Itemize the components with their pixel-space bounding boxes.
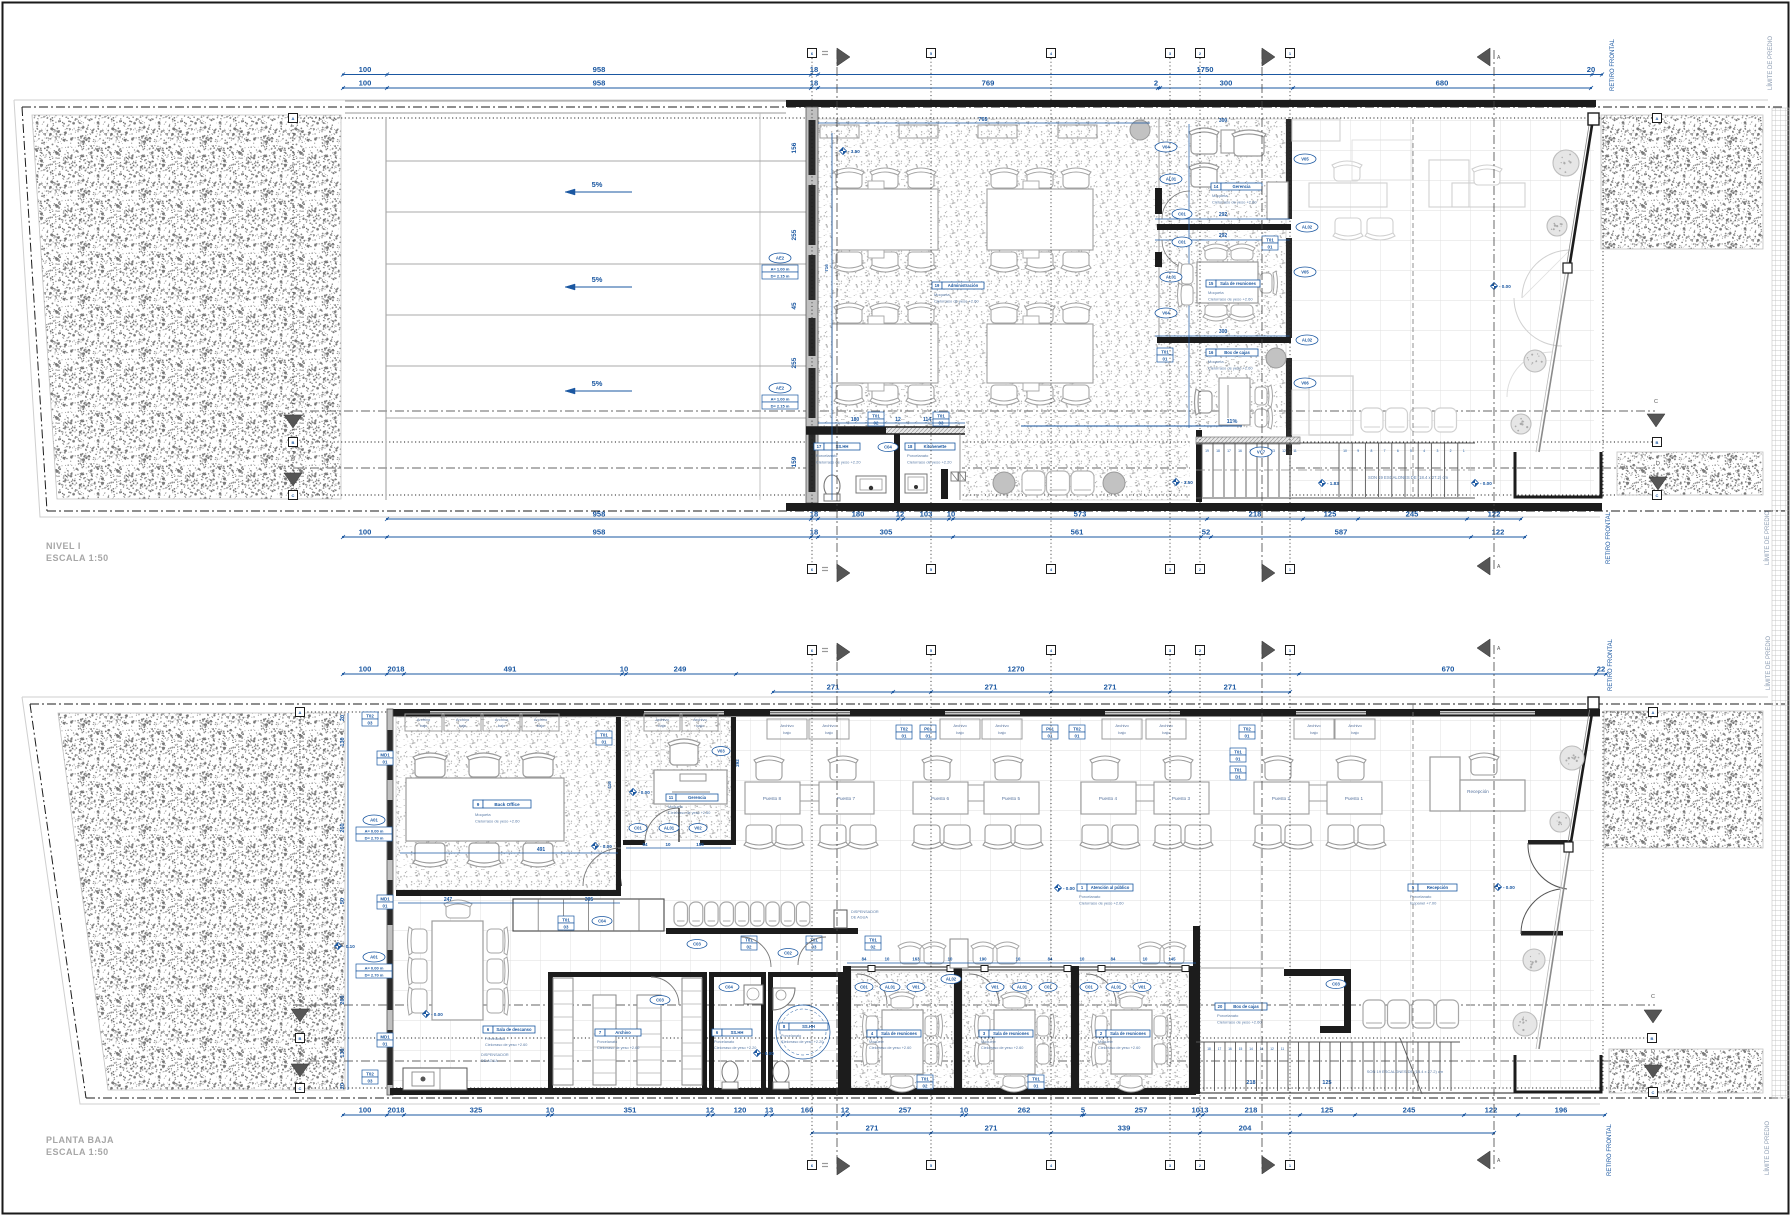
svg-text:C01: C01 (860, 985, 868, 990)
svg-text:D: D (291, 457, 295, 463)
svg-text:271: 271 (827, 683, 840, 692)
svg-text:18: 18 (810, 528, 818, 537)
svg-text:T02: T02 (1073, 727, 1081, 732)
svg-text:D: D (1651, 1049, 1655, 1055)
svg-text:A01: A01 (370, 818, 378, 823)
svg-text:3: 3 (1436, 449, 1438, 453)
svg-text:84: 84 (1111, 957, 1116, 962)
svg-text:V02: V02 (694, 826, 702, 831)
svg-text:Moqueta: Moqueta (1212, 193, 1228, 198)
svg-text:bajo: bajo (825, 730, 833, 735)
svg-text:DE AGUA: DE AGUA (851, 916, 868, 920)
svg-text:587: 587 (1335, 528, 1348, 537)
svg-text:bajo: bajo (1351, 730, 1359, 735)
svg-text:DISPENSADOR: DISPENSADOR (851, 910, 879, 914)
svg-text:22: 22 (1597, 665, 1605, 674)
svg-text:155: 155 (696, 842, 704, 847)
svg-text:T02: T02 (900, 727, 908, 732)
svg-text:18: 18 (908, 444, 913, 449)
svg-text:ESCALA 1:50: ESCALA 1:50 (46, 1147, 109, 1157)
svg-text:LÍMITE DE PREDIO: LÍMITE DE PREDIO (1767, 36, 1774, 90)
svg-text:204: 204 (1239, 1124, 1252, 1133)
svg-text:01: 01 (383, 760, 388, 765)
svg-text:18: 18 (810, 510, 818, 519)
svg-text:Archivo: Archivo (822, 723, 836, 728)
svg-text:- 0.00: - 0.00 (600, 844, 612, 849)
svg-text:130: 130 (340, 737, 346, 746)
svg-text:C03: C03 (693, 942, 701, 947)
svg-text:C04: C04 (725, 985, 733, 990)
svg-text:Moqueta: Moqueta (1208, 359, 1224, 364)
svg-text:680: 680 (1436, 79, 1449, 88)
svg-text:180: 180 (851, 417, 860, 423)
svg-text:01: 01 (1245, 734, 1250, 739)
svg-text:AL02: AL02 (946, 977, 957, 982)
svg-text:MD1: MD1 (380, 1035, 390, 1040)
svg-text:A= 0.00 m: A= 0.00 m (365, 829, 384, 834)
svg-text:Cielorraso de yeso +2.60: Cielorraso de yeso +2.60 (1079, 901, 1124, 906)
svg-text:C: C (1656, 493, 1659, 498)
svg-text:Moquete: Moquete (869, 1040, 884, 1044)
svg-text:C03: C03 (1332, 982, 1340, 987)
svg-text:257: 257 (1135, 1106, 1148, 1115)
svg-text:A= 0.00 m: A= 0.00 m (365, 966, 384, 971)
svg-text:T01: T01 (872, 414, 880, 419)
svg-text:Archivo: Archivo (495, 717, 509, 722)
svg-text:bajo: bajo (998, 730, 1006, 735)
svg-text:Porcelanato: Porcelanato (485, 1037, 505, 1041)
svg-text:DISPENSADOR: DISPENSADOR (481, 1053, 509, 1057)
svg-text:Archivo: Archivo (615, 1030, 631, 1035)
svg-text:A= 1.00 m: A= 1.00 m (771, 397, 790, 402)
svg-text:958: 958 (593, 510, 606, 519)
svg-text:AL02: AL02 (1302, 338, 1313, 343)
svg-text:218: 218 (1249, 510, 1262, 519)
svg-text:C03: C03 (656, 998, 664, 1003)
svg-text:V01: V01 (912, 985, 920, 990)
svg-text:C01: C01 (1178, 212, 1186, 217)
svg-text:Cielorraso de yeso +2.60: Cielorraso de yeso +2.60 (597, 1046, 639, 1050)
svg-text:C: C (291, 400, 295, 406)
svg-text:Archivo: Archivo (780, 723, 794, 728)
svg-text:271: 271 (1224, 683, 1237, 692)
svg-text:T01: T01 (921, 1077, 929, 1082)
svg-text:Cielorraso de yeso +2.60: Cielorraso de yeso +2.60 (934, 299, 979, 304)
svg-text:Sala de reuniones: Sala de reuniones (1110, 1031, 1147, 1036)
svg-text:T02: T02 (366, 1072, 374, 1077)
svg-text:247: 247 (444, 897, 453, 903)
svg-text:T01: T01 (1032, 1077, 1040, 1082)
svg-text:T01: T01 (562, 918, 570, 923)
svg-text:Cielorraso de yeso +2.60: Cielorraso de yeso +2.60 (1217, 1020, 1262, 1025)
svg-text:6: 6 (1397, 449, 1399, 453)
svg-text:C04: C04 (598, 919, 606, 924)
svg-text:AL01: AL01 (1166, 177, 1177, 182)
svg-text:- 1.83: - 1.83 (1327, 481, 1339, 486)
svg-text:14: 14 (1249, 1047, 1253, 1051)
svg-text:C01: C01 (1178, 240, 1186, 245)
svg-text:01: 01 (1268, 245, 1273, 250)
svg-text:15: 15 (1239, 1047, 1243, 1051)
svg-text:Kitchenette: Kitchenette (924, 444, 947, 449)
svg-text:14: 14 (1214, 184, 1219, 189)
svg-text:T01: T01 (1234, 768, 1242, 773)
svg-text:V04: V04 (1162, 145, 1170, 150)
svg-text:ESCALA 1:50: ESCALA 1:50 (46, 553, 109, 563)
svg-text:AL02: AL02 (1302, 225, 1313, 230)
svg-text:01: 01 (383, 1042, 388, 1047)
svg-text:20: 20 (1587, 65, 1595, 74)
svg-text:159: 159 (791, 456, 798, 467)
svg-text:C04: C04 (884, 445, 892, 450)
svg-text:V04: V04 (1162, 311, 1170, 316)
svg-text:01: 01 (1163, 357, 1168, 362)
svg-text:5%: 5% (592, 180, 603, 189)
svg-text:C01: C01 (1085, 985, 1093, 990)
svg-text:10: 10 (885, 957, 890, 962)
svg-text:156: 156 (791, 142, 798, 153)
svg-text:AE2: AE2 (776, 386, 785, 391)
svg-text:03: 03 (368, 721, 373, 726)
svg-text:A= 1.00 m: A= 1.00 m (771, 267, 790, 272)
svg-text:561: 561 (1071, 528, 1084, 537)
svg-text:bajo: bajo (498, 723, 506, 728)
svg-text:Puesto 3: Puesto 3 (1172, 796, 1191, 801)
svg-text:- 3.50: - 3.50 (848, 149, 860, 154)
svg-text:bajo: bajo (537, 723, 545, 728)
svg-text:Moqueta: Moqueta (475, 812, 491, 817)
svg-text:Archivo: Archivo (417, 717, 431, 722)
svg-text:03: 03 (368, 1079, 373, 1084)
svg-text:10: 10 (948, 957, 953, 962)
svg-text:B: B (292, 440, 295, 445)
svg-text:D1: D1 (1235, 775, 1241, 780)
svg-text:17: 17 (1218, 1047, 1222, 1051)
svg-text:Porcelanato: Porcelanato (1079, 894, 1101, 899)
svg-text:DE AGUA: DE AGUA (481, 1059, 498, 1063)
svg-text:Moquete: Moquete (1098, 1040, 1113, 1044)
svg-text:bajo: bajo (696, 723, 704, 728)
svg-text:01: 01 (926, 734, 931, 739)
svg-text:MD1: MD1 (380, 897, 390, 902)
svg-text:271: 271 (866, 1124, 879, 1133)
svg-text:716: 716 (824, 264, 829, 272)
svg-text:V03: V03 (717, 749, 725, 754)
svg-text:Porcelanato: Porcelanato (907, 453, 929, 458)
svg-text:Sala de reuniones: Sala de reuniones (881, 1031, 918, 1036)
svg-text:Archivo: Archivo (995, 723, 1009, 728)
svg-text:395: 395 (585, 897, 594, 903)
svg-text:Cielorraso de yeso +2.20: Cielorraso de yeso +2.20 (714, 1046, 756, 1050)
svg-text:196: 196 (1555, 1106, 1568, 1115)
svg-text:AL01: AL01 (664, 826, 675, 831)
svg-text:SON 19 ESCALONES DE (18.4 x 27: SON 19 ESCALONES DE (18.4 x 27.2) cm (1368, 475, 1449, 480)
svg-text:RETIRO FRONTAL: RETIRO FRONTAL (1606, 511, 1612, 564)
svg-text:Box de cajas: Box de cajas (1233, 1004, 1259, 1009)
svg-text:260: 260 (340, 995, 346, 1004)
svg-text:01: 01 (1048, 734, 1053, 739)
svg-text:292: 292 (735, 759, 740, 767)
svg-text:12: 12 (841, 1106, 849, 1115)
svg-text:351: 351 (624, 1106, 637, 1115)
svg-text:18: 18 (1216, 449, 1220, 453)
svg-text:Cielorraso de yeso +2.60: Cielorraso de yeso +2.60 (668, 811, 710, 815)
svg-text:AL01: AL01 (885, 985, 896, 990)
svg-text:C: C (292, 493, 295, 498)
svg-text:130: 130 (340, 1048, 346, 1057)
svg-text:Cielorraso de yeso +2.20: Cielorraso de yeso +2.20 (816, 460, 861, 465)
svg-text:Cielorraso de yeso +2.60: Cielorraso de yeso +2.60 (981, 1046, 1023, 1050)
svg-text:Moqueta: Moqueta (668, 805, 684, 809)
svg-text:8: 8 (1370, 449, 1372, 453)
svg-text:10: 10 (620, 665, 628, 674)
svg-text:AL01: AL01 (1111, 985, 1122, 990)
svg-text:769: 769 (982, 79, 995, 88)
svg-text:12: 12 (1270, 1047, 1274, 1051)
svg-text:Archivo: Archivo (693, 717, 707, 722)
svg-text:9: 9 (477, 802, 480, 807)
svg-text:- 0.00: - 0.00 (638, 790, 650, 795)
svg-text:Administración: Administración (948, 283, 979, 288)
svg-text:- 0.00: - 0.00 (1499, 284, 1511, 289)
svg-text:245: 245 (1406, 510, 1419, 519)
svg-text:01: 01 (1075, 734, 1080, 739)
svg-text:271: 271 (985, 1124, 998, 1133)
svg-text:416: 416 (607, 781, 612, 789)
svg-text:01: 01 (1034, 1084, 1039, 1089)
svg-text:670: 670 (1442, 665, 1455, 674)
svg-text:Sala de reuniones: Sala de reuniones (993, 1031, 1030, 1036)
svg-text:10: 10 (546, 1106, 554, 1115)
svg-text:RETIRO FRONTAL: RETIRO FRONTAL (1608, 638, 1614, 691)
svg-text:NIVEL I: NIVEL I (46, 541, 81, 551)
svg-text:958: 958 (593, 528, 606, 537)
svg-text:84: 84 (1048, 957, 1053, 962)
svg-text:C02: C02 (784, 951, 792, 956)
svg-text:Puesto 6: Puesto 6 (931, 796, 950, 801)
svg-text:271: 271 (1104, 683, 1117, 692)
svg-text:bajo: bajo (658, 723, 666, 728)
svg-text:01: 01 (383, 904, 388, 909)
svg-text:245: 245 (1403, 1106, 1416, 1115)
svg-text:12: 12 (1282, 449, 1286, 453)
svg-text:573: 573 (1074, 510, 1087, 519)
svg-text:11%: 11% (1227, 419, 1238, 425)
svg-text:A: A (1656, 116, 1659, 121)
svg-text:T01: T01 (937, 414, 945, 419)
svg-text:Porcelanato: Porcelanato (781, 1034, 801, 1038)
svg-text:D: D (298, 1048, 302, 1054)
svg-text:218: 218 (1245, 1106, 1258, 1115)
svg-text:Atención al público: Atención al público (1091, 885, 1130, 890)
svg-text:5%: 5% (592, 379, 603, 388)
svg-text:Moqueta: Moqueta (1208, 290, 1224, 295)
svg-text:VC7: VC7 (1257, 450, 1266, 455)
svg-text:262: 262 (1018, 1106, 1031, 1115)
svg-text:769: 769 (978, 117, 987, 123)
svg-text:11: 11 (1281, 1047, 1285, 1051)
svg-text:- 0.00: - 0.00 (431, 1012, 443, 1017)
svg-text:02: 02 (871, 945, 876, 950)
svg-text:255: 255 (791, 357, 798, 368)
svg-text:5%: 5% (592, 275, 603, 284)
svg-text:100: 100 (359, 528, 372, 537)
svg-text:125: 125 (1322, 1080, 1331, 1086)
svg-text:Cielorraso de yeso +2.60: Cielorraso de yeso +2.60 (869, 1046, 911, 1050)
svg-text:Moquete: Moquete (981, 1040, 996, 1044)
svg-text:163: 163 (912, 957, 920, 962)
svg-text:- 0.10: - 0.10 (343, 944, 355, 949)
svg-text:Archivo: Archivo (655, 717, 669, 722)
svg-text:17: 17 (817, 444, 822, 449)
svg-text:02: 02 (923, 1084, 928, 1089)
svg-text:Cielorraso de yeso +2.60: Cielorraso de yeso +2.60 (485, 1043, 527, 1047)
svg-text:AL01: AL01 (1166, 275, 1177, 280)
svg-text:12: 12 (895, 417, 901, 423)
svg-text:Archivo: Archivo (456, 717, 470, 722)
svg-text:Box de cajas: Box de cajas (1224, 350, 1250, 355)
svg-text:V01: V01 (1138, 985, 1146, 990)
svg-text:160: 160 (801, 1106, 814, 1115)
svg-text:Puesto 4: Puesto 4 (1099, 796, 1118, 801)
svg-text:339: 339 (1118, 1124, 1131, 1133)
svg-text:LÍMITE DE PREDIO: LÍMITE DE PREDIO (1765, 636, 1772, 690)
svg-text:10: 10 (1343, 449, 1347, 453)
svg-text:18: 18 (810, 79, 818, 88)
svg-text:- 0.00: - 0.00 (1063, 886, 1075, 891)
svg-text:10: 10 (665, 842, 671, 847)
svg-text:9: 9 (1357, 449, 1359, 453)
svg-text:Puesto 5: Puesto 5 (1002, 796, 1021, 801)
svg-text:- 0.00: - 0.00 (1503, 885, 1515, 890)
svg-text:Archivo: Archivo (1348, 723, 1362, 728)
svg-text:100: 100 (359, 665, 372, 674)
svg-text:Archivo: Archivo (953, 723, 967, 728)
svg-text:Gerencia: Gerencia (688, 795, 707, 800)
svg-text:20: 20 (340, 1083, 346, 1089)
svg-text:122: 122 (1492, 528, 1505, 537)
svg-text:bajo: bajo (1310, 730, 1318, 735)
svg-text:LÍMITE DE PREDIO: LÍMITE DE PREDIO (1764, 511, 1771, 565)
svg-text:Cielorraso de yeso +2.60: Cielorraso de yeso +2.60 (1098, 1046, 1140, 1050)
svg-text:LÍMITE DE PREDIO: LÍMITE DE PREDIO (1764, 1121, 1771, 1175)
svg-text:Back Office: Back Office (494, 802, 520, 807)
svg-text:bajo: bajo (1162, 730, 1170, 735)
svg-text:10: 10 (1143, 957, 1148, 962)
svg-text:T01: T01 (1161, 350, 1169, 355)
svg-text:10: 10 (960, 1106, 968, 1115)
svg-text:P01: P01 (1046, 727, 1054, 732)
svg-text:T01: T01 (1234, 750, 1242, 755)
svg-text:V06: V06 (1301, 381, 1309, 386)
svg-text:103: 103 (920, 510, 933, 519)
svg-text:19: 19 (935, 283, 940, 288)
svg-text:SS.HH: SS.HH (802, 1024, 815, 1029)
svg-text:218: 218 (1246, 1080, 1255, 1086)
svg-text:255: 255 (791, 229, 798, 240)
svg-text:19: 19 (1205, 449, 1209, 453)
svg-text:13: 13 (765, 1106, 773, 1115)
svg-text:D= 2.70 m: D= 2.70 m (365, 973, 384, 978)
svg-text:A: A (1652, 710, 1655, 715)
svg-text:100: 100 (359, 1106, 372, 1115)
svg-text:18: 18 (810, 65, 818, 74)
svg-text:292: 292 (1219, 233, 1228, 239)
svg-text:20: 20 (1218, 1004, 1223, 1009)
svg-text:C: C (1654, 399, 1658, 405)
svg-text:4: 4 (1423, 449, 1425, 453)
svg-text:A01: A01 (370, 955, 378, 960)
svg-text:Sala de reuniones: Sala de reuniones (1220, 281, 1257, 286)
svg-text:SS.HH: SS.HH (731, 1030, 744, 1035)
svg-text:84: 84 (642, 842, 648, 847)
svg-text:B: B (1656, 440, 1659, 445)
svg-text:300: 300 (1219, 329, 1228, 335)
svg-text:7: 7 (1384, 449, 1386, 453)
svg-text:491: 491 (504, 665, 517, 674)
svg-text:Puesto 8: Puesto 8 (763, 796, 782, 801)
svg-text:Archivo: Archivo (1115, 723, 1129, 728)
svg-text:145: 145 (1168, 957, 1176, 962)
svg-text:- 0.00: - 0.00 (1480, 481, 1492, 486)
svg-text:Cielorraso de yeso +2.60: Cielorraso de yeso +2.60 (1212, 200, 1257, 205)
svg-text:PLANTA BAJA: PLANTA BAJA (46, 1135, 114, 1145)
svg-text:Porcelanato: Porcelanato (714, 1040, 734, 1044)
svg-text:bajo: bajo (459, 723, 467, 728)
svg-text:260: 260 (340, 823, 346, 832)
svg-text:Puesto 2: Puesto 2 (1272, 796, 1291, 801)
svg-text:Cielorraso de yeso +2.60: Cielorraso de yeso +2.60 (1208, 366, 1253, 371)
svg-text:RETIRO FRONTAL: RETIRO FRONTAL (1610, 38, 1616, 91)
svg-text:15: 15 (1209, 281, 1214, 286)
svg-text:C: C (1652, 1090, 1655, 1095)
svg-text:C: C (298, 993, 302, 999)
svg-text:17: 17 (1227, 449, 1231, 453)
svg-text:V05: V05 (1301, 270, 1309, 275)
svg-text:V05: V05 (1301, 157, 1309, 162)
svg-text:Moqueta: Moqueta (934, 292, 950, 297)
svg-text:958: 958 (593, 79, 606, 88)
svg-text:bajo: bajo (1118, 730, 1126, 735)
svg-text:bajo: bajo (783, 730, 791, 735)
svg-text:C: C (1651, 994, 1655, 1000)
svg-text:Cielorraso de yeso +2.20: Cielorraso de yeso +2.20 (907, 460, 952, 465)
svg-text:01: 01 (902, 734, 907, 739)
svg-text:Porcelanato: Porcelanato (816, 453, 838, 458)
svg-text:Cielorraso de yeso +2.20: Cielorraso de yeso +2.20 (781, 1040, 823, 1044)
svg-text:325: 325 (470, 1106, 483, 1115)
svg-text:T02: T02 (1243, 727, 1251, 732)
svg-text:12: 12 (706, 1106, 714, 1115)
svg-text:SON 19 ESCALONES DE (18.4 x 27: SON 19 ESCALONES DE (18.4 x 27.2) cm (1367, 1069, 1444, 1074)
svg-text:C01: C01 (634, 826, 642, 831)
svg-text:- 0.00: - 0.00 (762, 1051, 774, 1056)
svg-text:bajo: bajo (956, 730, 964, 735)
svg-text:B: B (299, 1036, 302, 1041)
svg-text:D= 2.70 m: D= 2.70 m (365, 836, 384, 841)
svg-text:271: 271 (985, 683, 998, 692)
svg-text:01: 01 (602, 740, 607, 745)
svg-text:Puesto 7: Puesto 7 (837, 796, 856, 801)
svg-text:16: 16 (1209, 350, 1214, 355)
svg-text:1270: 1270 (1008, 665, 1025, 674)
svg-text:AE2: AE2 (776, 256, 785, 261)
svg-text:125: 125 (1324, 510, 1337, 519)
svg-text:10: 10 (947, 510, 955, 519)
svg-text:50: 50 (340, 898, 346, 904)
svg-text:Porcelanato: Porcelanato (597, 1040, 617, 1044)
svg-text:84: 84 (862, 957, 867, 962)
